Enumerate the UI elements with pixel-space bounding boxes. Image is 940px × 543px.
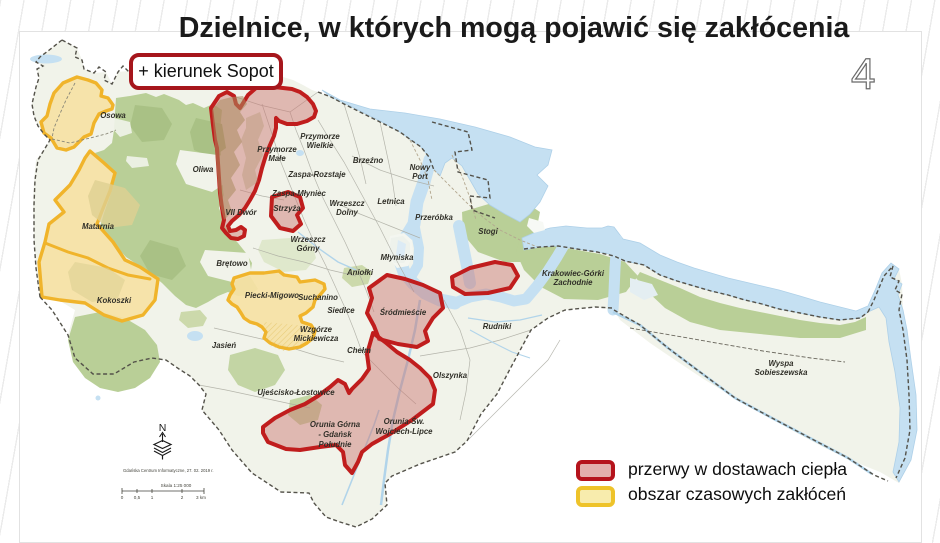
svg-text:Górny: Górny (297, 244, 321, 253)
svg-text:Wyspa: Wyspa (769, 359, 795, 368)
svg-text:Zaspa-Młyniec: Zaspa-Młyniec (271, 189, 326, 198)
svg-text:Młyniska: Młyniska (381, 253, 415, 262)
svg-text:Południe: Południe (319, 440, 353, 449)
svg-text:Piecki-Migowo: Piecki-Migowo (245, 291, 299, 300)
svg-text:Gdańska Centrum Informatyczne,: Gdańska Centrum Informatyczne, 27. 02. 2… (123, 468, 214, 473)
svg-text:3 km: 3 km (196, 495, 206, 500)
svg-text:Brzeźno: Brzeźno (353, 156, 384, 165)
svg-text:Sobieszewska: Sobieszewska (755, 368, 809, 377)
svg-text:Wzgórze: Wzgórze (300, 325, 333, 334)
svg-text:Mickiewicza: Mickiewicza (294, 334, 339, 343)
svg-text:Przymorze: Przymorze (257, 145, 297, 154)
svg-text:Letnica: Letnica (377, 197, 405, 206)
svg-text:Strzyża: Strzyża (273, 204, 301, 213)
svg-text:Stogi: Stogi (478, 227, 498, 236)
svg-text:Wrzeszcz: Wrzeszcz (291, 235, 326, 244)
svg-text:Matarnia: Matarnia (82, 222, 115, 231)
svg-text:- Gdańsk: - Gdańsk (318, 430, 352, 439)
svg-text:Chełm: Chełm (347, 346, 371, 355)
svg-text:Wielkie: Wielkie (307, 141, 334, 150)
svg-text:Ujeścisko-Łostowice: Ujeścisko-Łostowice (257, 388, 335, 397)
svg-text:Wrzeszcz: Wrzeszcz (330, 199, 365, 208)
svg-text:Nowy: Nowy (410, 163, 431, 172)
svg-text:Osowa: Osowa (100, 111, 126, 120)
svg-text:Śródmieście: Śródmieście (380, 308, 427, 317)
svg-text:Wojciech-Lipce: Wojciech-Lipce (375, 427, 433, 436)
svg-text:Rudniki: Rudniki (483, 322, 512, 331)
svg-text:0: 0 (121, 495, 124, 500)
svg-text:Zachodnie: Zachodnie (553, 278, 594, 287)
svg-text:Aniołki: Aniołki (346, 268, 374, 277)
svg-text:Orunia-Św.: Orunia-Św. (384, 417, 425, 426)
svg-text:Orunia Górna: Orunia Górna (310, 420, 361, 429)
svg-text:Dolny: Dolny (336, 208, 358, 217)
svg-text:Zaspa-Rozstaje: Zaspa-Rozstaje (287, 170, 346, 179)
svg-text:2: 2 (181, 495, 184, 500)
svg-text:Przymorze: Przymorze (300, 132, 340, 141)
svg-text:VII Dwór: VII Dwór (225, 208, 257, 217)
svg-text:Krakowiec-Górki: Krakowiec-Górki (542, 269, 605, 278)
svg-text:Przeróbka: Przeróbka (415, 213, 453, 222)
svg-text:Kokoszki: Kokoszki (97, 296, 132, 305)
svg-text:Oliwa: Oliwa (193, 165, 214, 174)
svg-text:Suchanino: Suchanino (298, 293, 338, 302)
svg-text:Port: Port (412, 172, 428, 181)
svg-text:Skala 1:25 000: Skala 1:25 000 (161, 483, 192, 488)
svg-text:Jasień: Jasień (212, 341, 237, 350)
svg-text:0,5: 0,5 (134, 495, 141, 500)
svg-text:1: 1 (151, 495, 154, 500)
svg-text:Olszynka: Olszynka (433, 371, 468, 380)
svg-text:Małe: Małe (268, 154, 286, 163)
svg-text:Siedlce: Siedlce (327, 306, 355, 315)
svg-text:Brętowo: Brętowo (216, 259, 247, 268)
